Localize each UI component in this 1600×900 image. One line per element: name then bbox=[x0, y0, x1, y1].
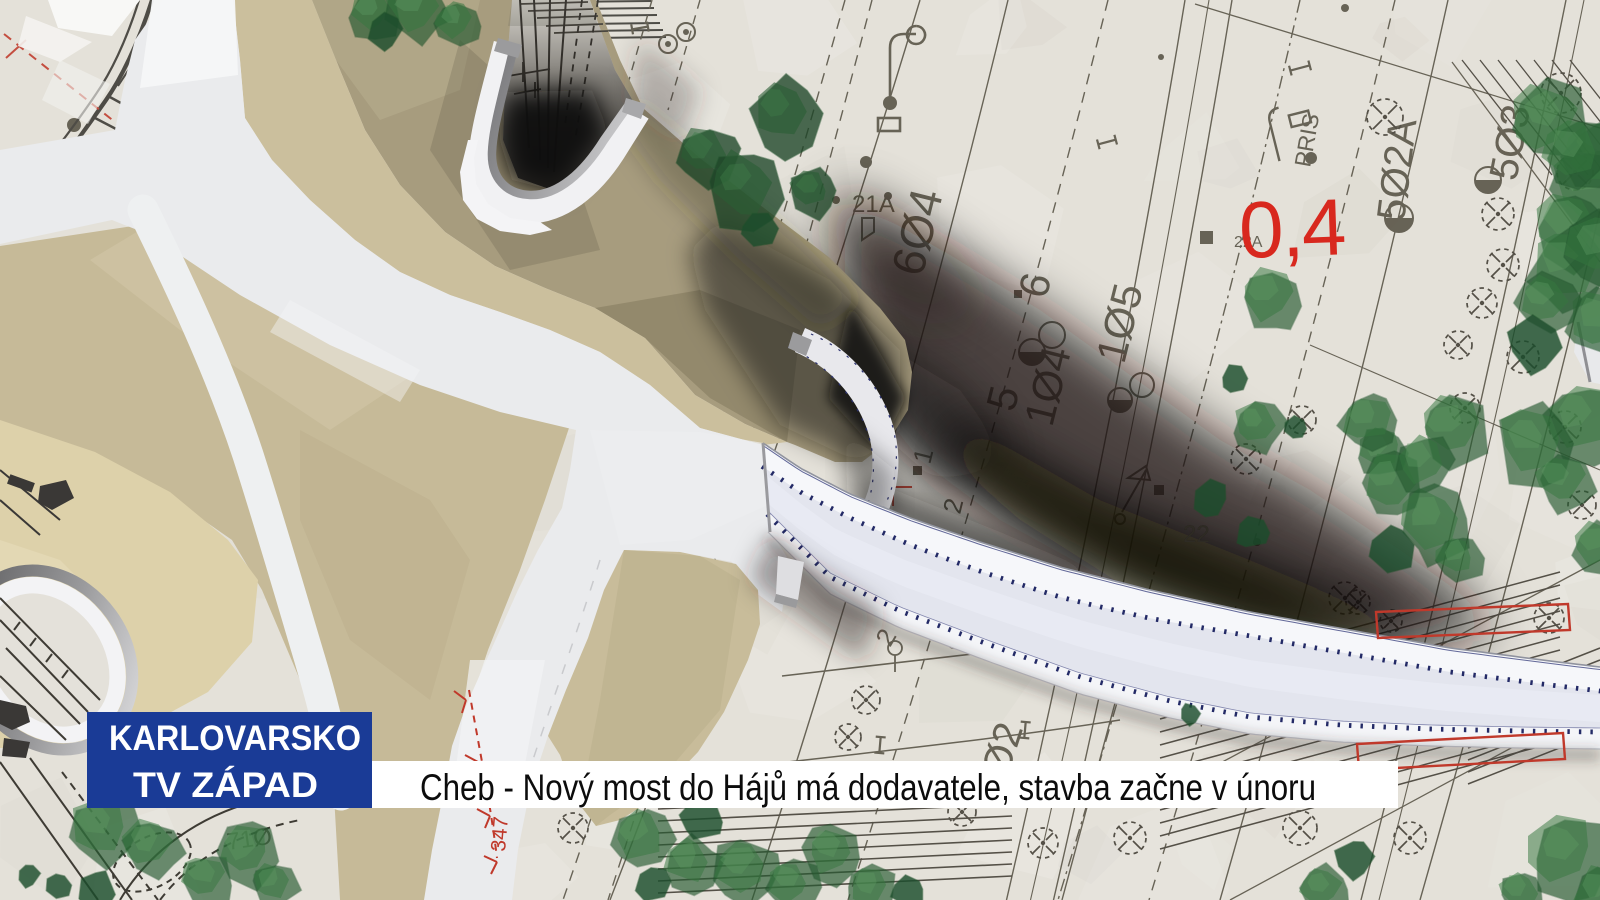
svg-text:TV ZÁPAD: TV ZÁPAD bbox=[133, 765, 318, 805]
svg-text:347: 347 bbox=[487, 816, 513, 853]
svg-text:Cheb - Nový most do Hájů má do: Cheb - Nový most do Hájů má dodavatele, … bbox=[420, 767, 1316, 808]
svg-text:KARLOVARSKO: KARLOVARSKO bbox=[109, 719, 361, 758]
svg-text:22: 22 bbox=[1183, 521, 1210, 548]
svg-text:0,4: 0,4 bbox=[1237, 182, 1346, 275]
